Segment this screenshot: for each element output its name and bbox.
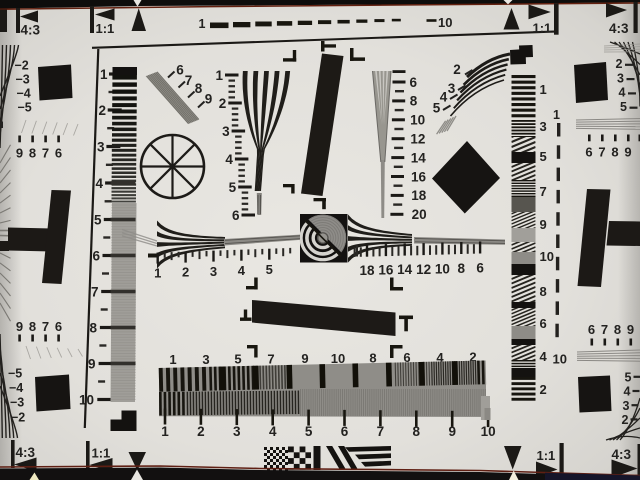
svg-text:9: 9	[301, 351, 308, 366]
svg-text:7: 7	[601, 322, 608, 337]
svg-text:8: 8	[29, 146, 36, 161]
svg-text:8: 8	[540, 284, 547, 299]
svg-text:16: 16	[411, 169, 427, 184]
svg-text:5: 5	[94, 212, 102, 227]
svg-text:4:3: 4:3	[609, 21, 629, 36]
svg-text:4: 4	[269, 424, 277, 439]
svg-text:1: 1	[553, 108, 560, 122]
svg-text:10: 10	[553, 352, 567, 367]
svg-text:6: 6	[55, 319, 62, 334]
svg-text:9: 9	[540, 217, 547, 232]
svg-text:2: 2	[622, 413, 629, 427]
svg-text:8: 8	[29, 319, 36, 334]
svg-text:4:3: 4:3	[21, 23, 41, 38]
svg-text:4: 4	[238, 263, 246, 278]
svg-text:8: 8	[457, 261, 465, 276]
svg-text:4: 4	[225, 152, 233, 167]
svg-text:9: 9	[627, 322, 634, 337]
svg-text:5: 5	[305, 424, 313, 439]
svg-text:9: 9	[16, 319, 23, 334]
svg-text:8: 8	[195, 81, 203, 96]
svg-text:5: 5	[433, 101, 441, 116]
svg-text:5: 5	[540, 149, 547, 164]
svg-text:8: 8	[413, 424, 421, 439]
svg-text:2: 2	[98, 103, 106, 118]
svg-text:4: 4	[624, 385, 631, 399]
svg-text:10: 10	[438, 15, 452, 30]
svg-text:2: 2	[197, 424, 205, 439]
svg-text:7: 7	[377, 424, 385, 439]
svg-text:8: 8	[89, 320, 97, 335]
svg-text:5: 5	[234, 352, 241, 367]
svg-text:9: 9	[88, 356, 96, 371]
svg-text:1:1: 1:1	[92, 446, 111, 461]
svg-text:6: 6	[588, 322, 595, 337]
svg-text:9: 9	[624, 145, 631, 160]
svg-text:4: 4	[540, 349, 548, 364]
svg-text:1: 1	[199, 17, 206, 31]
svg-text:1: 1	[169, 352, 176, 367]
svg-text:10: 10	[410, 113, 425, 128]
svg-text:3: 3	[233, 424, 241, 439]
svg-text:1: 1	[161, 424, 169, 439]
svg-text:−5: −5	[18, 101, 32, 115]
svg-text:16: 16	[378, 263, 394, 278]
svg-text:3: 3	[540, 119, 547, 134]
svg-text:18: 18	[411, 188, 427, 203]
svg-text:2: 2	[182, 265, 189, 280]
svg-text:1:1: 1:1	[96, 21, 115, 36]
svg-text:4:3: 4:3	[16, 445, 36, 460]
svg-text:7: 7	[42, 146, 49, 161]
svg-text:3: 3	[623, 399, 630, 413]
svg-text:14: 14	[397, 262, 413, 277]
svg-text:1: 1	[540, 82, 547, 97]
svg-text:4: 4	[440, 90, 448, 105]
svg-text:2: 2	[616, 57, 623, 71]
svg-text:5: 5	[625, 371, 632, 385]
svg-text:6: 6	[232, 208, 240, 223]
svg-text:7: 7	[598, 145, 605, 160]
svg-text:1: 1	[154, 266, 161, 281]
svg-text:6: 6	[585, 145, 592, 160]
svg-text:3: 3	[210, 264, 217, 279]
svg-text:3: 3	[222, 124, 230, 139]
svg-text:4: 4	[619, 86, 626, 100]
svg-text:9: 9	[448, 424, 456, 439]
svg-text:5: 5	[229, 180, 237, 195]
svg-text:8: 8	[410, 94, 418, 109]
svg-text:5: 5	[266, 262, 273, 277]
svg-text:7: 7	[91, 284, 99, 299]
svg-text:7: 7	[42, 319, 49, 334]
svg-text:4: 4	[95, 176, 103, 191]
svg-text:18: 18	[359, 263, 375, 278]
svg-text:6: 6	[341, 424, 349, 439]
svg-text:2: 2	[219, 96, 227, 111]
svg-text:−3: −3	[10, 396, 24, 410]
svg-text:6: 6	[92, 248, 100, 263]
svg-text:8: 8	[614, 322, 621, 337]
svg-text:9: 9	[205, 92, 213, 107]
svg-text:14: 14	[411, 150, 427, 165]
svg-text:−4: −4	[17, 87, 31, 101]
svg-text:−4: −4	[9, 381, 23, 395]
svg-text:12: 12	[416, 262, 431, 277]
svg-text:7: 7	[185, 73, 193, 88]
svg-text:10: 10	[540, 249, 554, 264]
svg-text:3: 3	[202, 352, 209, 367]
svg-text:6: 6	[55, 146, 62, 161]
svg-text:1:1: 1:1	[533, 21, 552, 36]
svg-text:3: 3	[97, 139, 105, 154]
svg-text:20: 20	[412, 207, 427, 222]
svg-text:5: 5	[620, 100, 627, 114]
svg-text:2: 2	[540, 382, 547, 397]
svg-text:1: 1	[215, 68, 223, 83]
svg-text:12: 12	[410, 132, 425, 147]
svg-text:7: 7	[540, 184, 547, 199]
svg-text:6: 6	[410, 75, 418, 90]
svg-text:10: 10	[331, 351, 345, 366]
svg-text:6: 6	[176, 63, 184, 78]
svg-text:−2: −2	[11, 410, 25, 424]
svg-text:3: 3	[448, 81, 456, 96]
svg-text:3: 3	[617, 71, 624, 85]
svg-text:−3: −3	[16, 73, 30, 87]
svg-text:−2: −2	[15, 59, 29, 73]
svg-text:10: 10	[435, 261, 450, 276]
svg-text:9: 9	[16, 146, 23, 161]
svg-text:2: 2	[453, 62, 461, 77]
svg-text:1: 1	[100, 67, 108, 82]
svg-text:1:1: 1:1	[537, 448, 556, 463]
svg-text:−5: −5	[8, 367, 22, 381]
svg-text:4:3: 4:3	[612, 447, 632, 462]
svg-text:6: 6	[476, 261, 484, 276]
svg-text:7: 7	[267, 351, 274, 366]
svg-text:10: 10	[481, 424, 496, 439]
svg-text:6: 6	[540, 316, 547, 331]
svg-text:8: 8	[611, 145, 618, 160]
